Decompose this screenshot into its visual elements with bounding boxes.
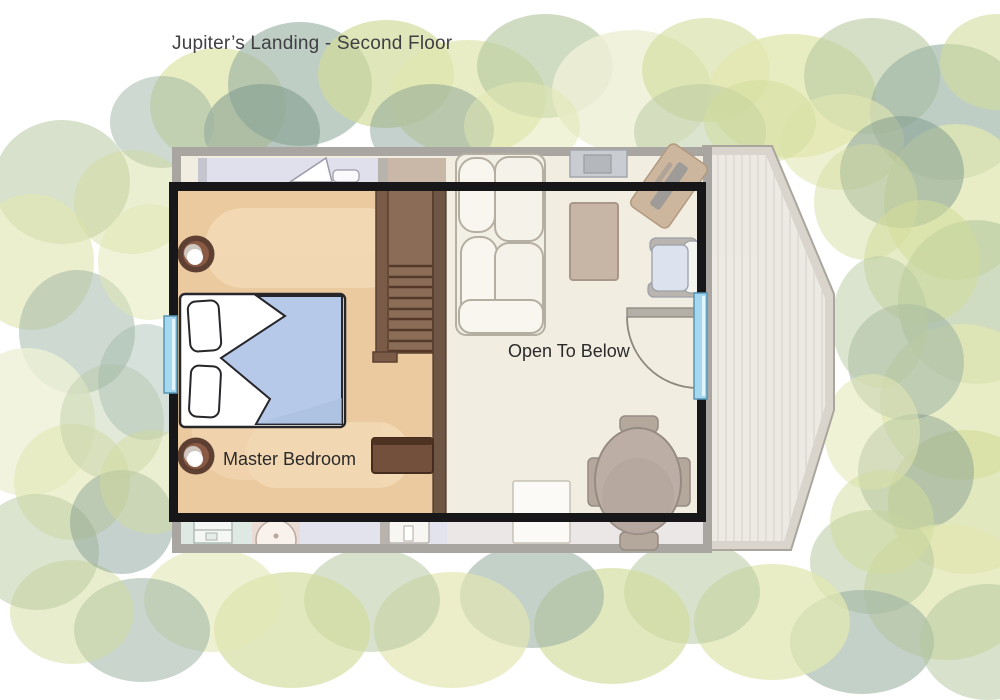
staircase	[373, 190, 433, 362]
ghost-sink	[389, 521, 429, 543]
room-label-open-to-below: Open To Below	[508, 341, 630, 362]
armchair	[648, 238, 702, 297]
bed	[180, 294, 345, 427]
kitchen-counter	[513, 481, 570, 543]
floor-plan	[0, 0, 1000, 700]
dresser	[372, 438, 433, 473]
floor-plan-page: Jupiter’s Landing - Second Floor Master …	[0, 0, 1000, 700]
pillow	[189, 365, 222, 418]
ghost-strip-top	[198, 158, 446, 182]
tv	[570, 150, 627, 177]
deck	[703, 146, 834, 550]
interior-wall	[433, 190, 446, 514]
ghost-vanity	[194, 521, 232, 543]
ghost-toilet	[256, 520, 296, 560]
window-left	[164, 316, 177, 393]
couch	[456, 154, 545, 335]
page-title: Jupiter’s Landing - Second Floor	[172, 33, 452, 55]
plant-pot	[178, 236, 215, 273]
pillow	[187, 300, 221, 352]
wall-bottom	[169, 513, 706, 522]
room-label-master-bedroom: Master Bedroom	[223, 449, 356, 470]
rug	[570, 203, 618, 280]
window-right	[694, 293, 707, 399]
plant-pot	[178, 438, 215, 475]
wall-top	[169, 182, 706, 191]
